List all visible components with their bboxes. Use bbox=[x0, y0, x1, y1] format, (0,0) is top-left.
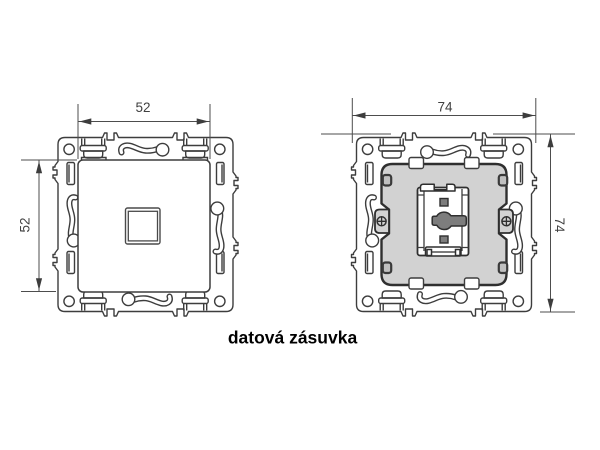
svg-text:52: 52 bbox=[18, 217, 33, 232]
svg-text:datová zásuvka: datová zásuvka bbox=[228, 328, 358, 348]
svg-text:74: 74 bbox=[552, 217, 567, 233]
svg-text:74: 74 bbox=[437, 100, 453, 115]
svg-text:52: 52 bbox=[135, 100, 150, 115]
